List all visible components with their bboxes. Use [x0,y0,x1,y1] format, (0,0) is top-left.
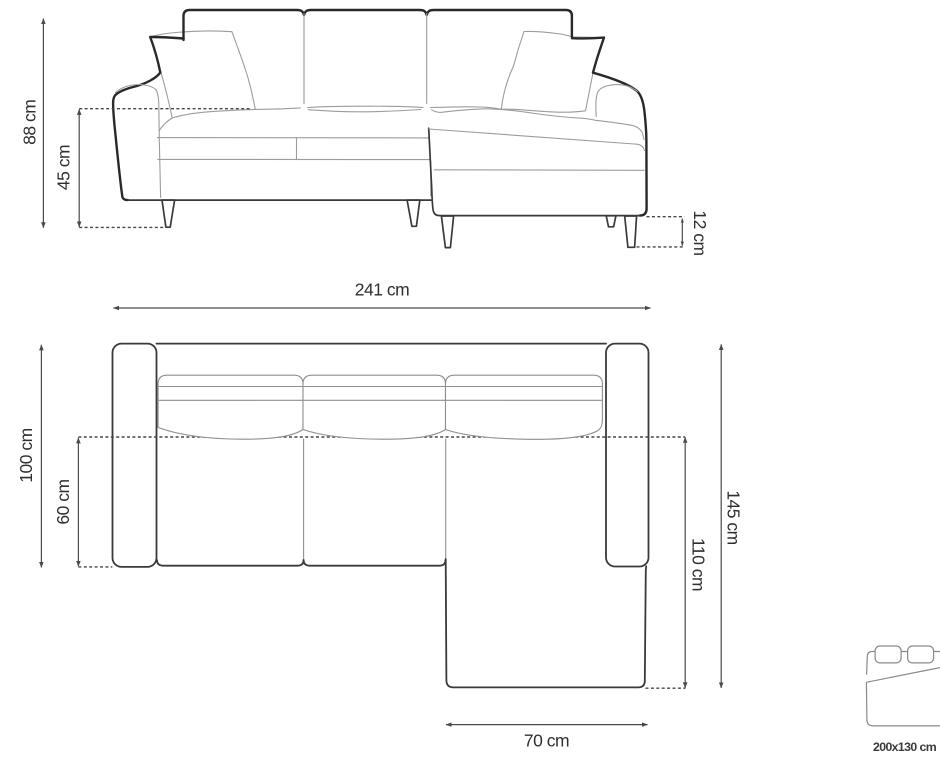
svg-text:45 cm: 45 cm [54,145,74,190]
svg-text:110 cm: 110 cm [688,538,708,591]
svg-text:88 cm: 88 cm [19,100,39,145]
svg-text:145 cm: 145 cm [723,490,743,544]
svg-text:241 cm: 241 cm [355,280,409,300]
svg-text:200x130 cm: 200x130 cm [873,740,937,754]
svg-text:70 cm: 70 cm [524,731,569,751]
svg-text:12 cm: 12 cm [690,210,710,255]
svg-text:100 cm: 100 cm [16,428,36,482]
svg-text:60 cm: 60 cm [53,479,73,524]
